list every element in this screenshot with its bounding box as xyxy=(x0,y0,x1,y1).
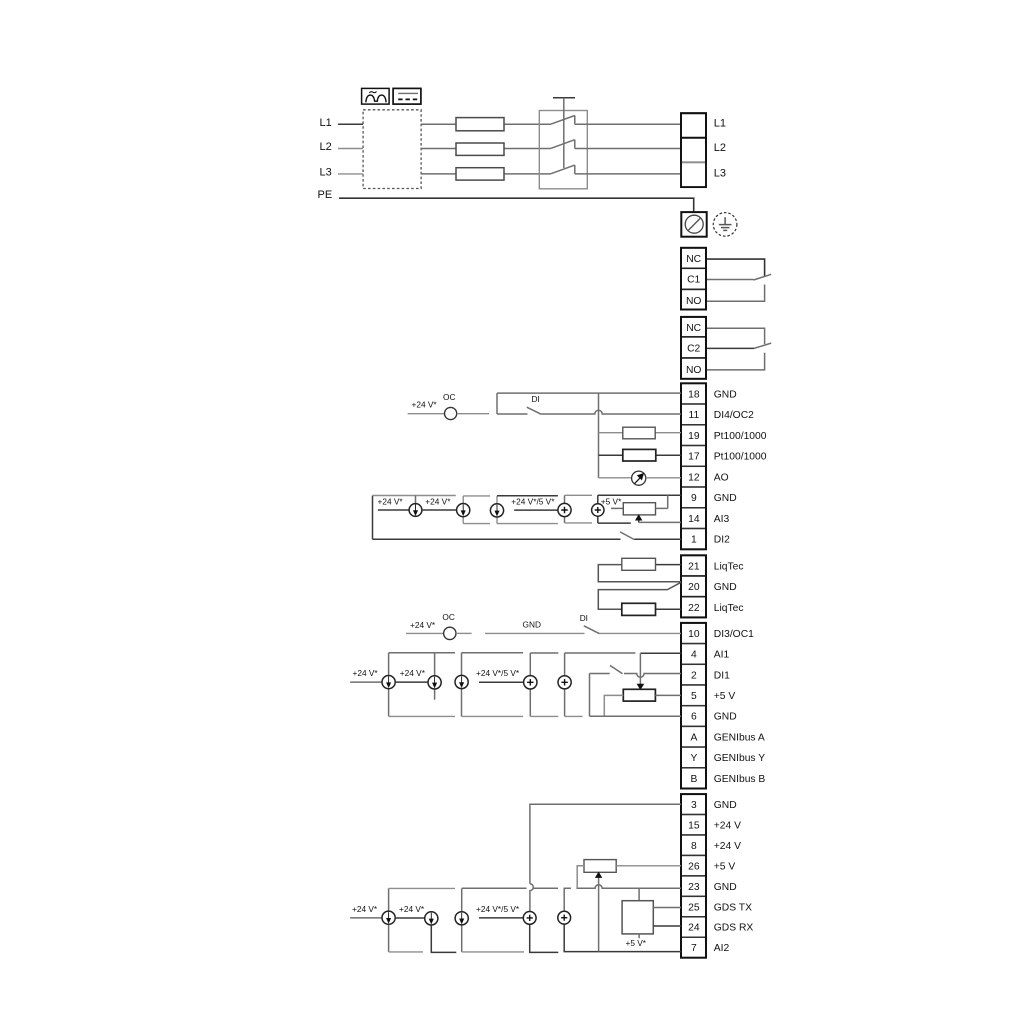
svg-text:+24 V*: +24 V* xyxy=(399,904,425,914)
svg-text:19: 19 xyxy=(688,431,700,442)
svg-text:+24 V*: +24 V* xyxy=(352,904,378,914)
svg-text:20: 20 xyxy=(688,582,700,593)
svg-text:+24 V*/5 V*: +24 V*/5 V* xyxy=(476,904,520,914)
svg-text:9: 9 xyxy=(691,493,697,504)
svg-text:12: 12 xyxy=(688,472,700,483)
svg-text:L2: L2 xyxy=(714,142,726,154)
svg-text:+24 V*: +24 V* xyxy=(425,497,451,507)
svg-text:AI3: AI3 xyxy=(714,514,730,525)
svg-text:6: 6 xyxy=(691,712,697,723)
svg-text:1: 1 xyxy=(691,535,697,546)
svg-text:DI1: DI1 xyxy=(714,670,730,681)
svg-text:Y: Y xyxy=(690,753,697,764)
svg-text:GND: GND xyxy=(714,582,737,593)
svg-text:+24 V*: +24 V* xyxy=(410,620,436,630)
svg-text:LiqTec: LiqTec xyxy=(714,603,744,614)
svg-text:DI: DI xyxy=(580,613,588,623)
svg-text:10: 10 xyxy=(688,629,700,640)
svg-text:DI4/OC2: DI4/OC2 xyxy=(714,410,754,421)
svg-text:L3: L3 xyxy=(320,167,332,179)
svg-text:Pt100/1000: Pt100/1000 xyxy=(714,452,767,463)
svg-text:GENIbus A: GENIbus A xyxy=(714,732,765,743)
svg-text:B: B xyxy=(690,774,697,785)
svg-text:+24 V*: +24 V* xyxy=(400,668,426,678)
svg-text:LiqTec: LiqTec xyxy=(714,561,744,572)
svg-text:C2: C2 xyxy=(687,344,700,355)
svg-text:OC: OC xyxy=(443,392,455,402)
svg-text:C1: C1 xyxy=(687,275,700,286)
svg-text:GND: GND xyxy=(714,800,737,811)
svg-text:GND: GND xyxy=(714,712,737,723)
svg-text:22: 22 xyxy=(688,603,700,614)
svg-text:+24 V*: +24 V* xyxy=(378,497,404,507)
svg-text:7: 7 xyxy=(691,943,697,954)
svg-text:L3: L3 xyxy=(714,167,726,179)
svg-text:+24 V*/5 V*: +24 V*/5 V* xyxy=(476,668,520,678)
svg-text:DI3/OC1: DI3/OC1 xyxy=(714,629,754,640)
svg-text:Pt100/1000: Pt100/1000 xyxy=(714,431,767,442)
svg-text:GND: GND xyxy=(523,619,541,629)
svg-text:AI1: AI1 xyxy=(714,650,730,661)
svg-text:+5 V: +5 V xyxy=(714,691,736,702)
svg-text:DI: DI xyxy=(532,394,540,404)
svg-text:8: 8 xyxy=(691,841,697,852)
svg-text:PE: PE xyxy=(318,189,333,201)
svg-text:GND: GND xyxy=(714,493,737,504)
svg-text:+24 V: +24 V xyxy=(714,841,741,852)
svg-text:GND: GND xyxy=(714,389,737,400)
svg-text:18: 18 xyxy=(688,389,700,400)
svg-text:2: 2 xyxy=(691,670,697,681)
svg-text:17: 17 xyxy=(688,452,700,463)
svg-text:+24 V*: +24 V* xyxy=(412,399,438,409)
svg-text:+24 V: +24 V xyxy=(714,821,741,832)
svg-text:NC: NC xyxy=(686,323,701,334)
svg-text:+24 V*/5 V*: +24 V*/5 V* xyxy=(511,497,555,507)
svg-text:+5 V*: +5 V* xyxy=(601,497,622,507)
svg-text:5: 5 xyxy=(691,691,697,702)
svg-text:L1: L1 xyxy=(320,117,332,129)
svg-text:GND: GND xyxy=(714,882,737,893)
svg-text:4: 4 xyxy=(691,650,697,661)
svg-text:L2: L2 xyxy=(320,141,332,153)
svg-text:15: 15 xyxy=(688,821,700,832)
svg-text:+24 V*: +24 V* xyxy=(353,668,379,678)
svg-text:GENIbus B: GENIbus B xyxy=(714,774,766,785)
svg-text:NO: NO xyxy=(686,365,701,376)
svg-text:L1: L1 xyxy=(714,117,726,129)
svg-text:23: 23 xyxy=(688,882,700,893)
svg-text:GENIbus Y: GENIbus Y xyxy=(714,753,765,764)
svg-text:14: 14 xyxy=(688,514,700,525)
svg-text:24: 24 xyxy=(688,923,700,934)
svg-text:DI2: DI2 xyxy=(714,535,730,546)
svg-text:26: 26 xyxy=(688,861,700,872)
svg-text:A: A xyxy=(690,732,697,743)
svg-text:NO: NO xyxy=(686,296,701,307)
svg-text:11: 11 xyxy=(689,410,700,421)
svg-text:+5 V*: +5 V* xyxy=(626,938,647,948)
svg-text:AO: AO xyxy=(714,472,729,483)
svg-text:GDS RX: GDS RX xyxy=(714,923,754,934)
svg-text:OC: OC xyxy=(442,612,454,622)
svg-text:GDS TX: GDS TX xyxy=(714,902,752,913)
svg-text:3: 3 xyxy=(691,800,697,811)
svg-text:AI2: AI2 xyxy=(714,943,730,954)
svg-text:21: 21 xyxy=(688,561,700,572)
svg-text:NC: NC xyxy=(686,254,701,265)
svg-text:+5 V: +5 V xyxy=(714,861,736,872)
svg-text:25: 25 xyxy=(688,902,700,913)
